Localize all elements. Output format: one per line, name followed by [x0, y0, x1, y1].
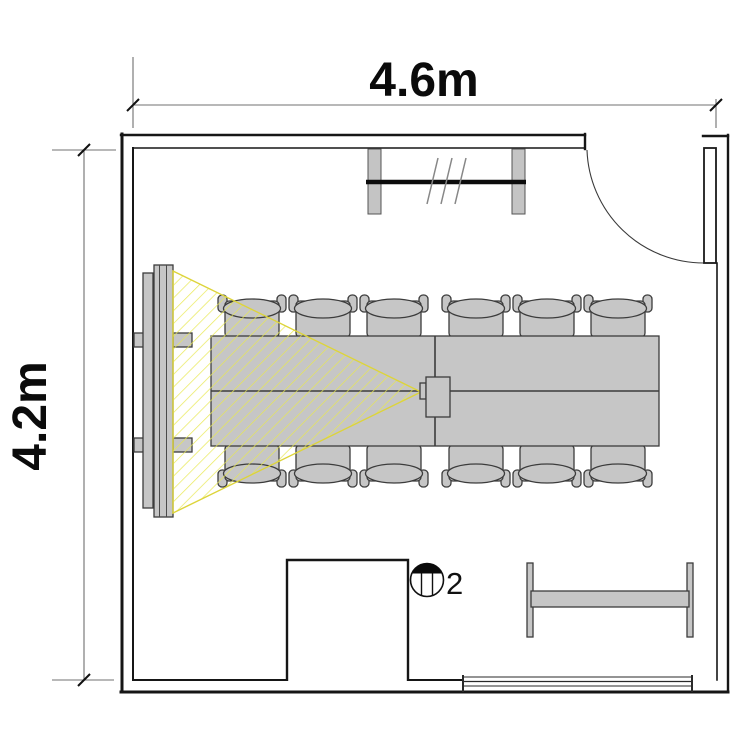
ceiling-device-symbol: 2	[411, 563, 464, 601]
chair	[289, 295, 357, 337]
chair	[513, 445, 581, 487]
top-dimension: 4.6m	[127, 54, 722, 128]
floor-plan: 4.6m 4.2m	[0, 0, 750, 750]
screen-back-panel	[143, 273, 153, 508]
sideboard-top	[531, 591, 689, 607]
whiteboard	[366, 149, 526, 214]
height-dimension-label: 4.2m	[4, 361, 57, 470]
device-cap-icon	[412, 563, 442, 573]
chair	[584, 445, 652, 487]
screen-front-panel	[154, 265, 173, 517]
width-dimension-label: 4.6m	[369, 54, 478, 107]
alcove-notch	[287, 560, 408, 681]
chair	[442, 295, 510, 337]
chair	[360, 445, 428, 487]
window	[463, 675, 692, 692]
projector-lens	[420, 383, 426, 399]
chair	[442, 445, 510, 487]
floor-plan-canvas: 4.6m 4.2m	[0, 0, 750, 750]
left-dimension: 4.2m	[4, 144, 116, 686]
chair	[360, 295, 428, 337]
door	[587, 148, 716, 263]
device-count-label: 2	[446, 566, 463, 601]
sideboard-table	[527, 563, 693, 637]
door-swing-arc	[587, 150, 704, 263]
chair	[513, 295, 581, 337]
chair	[584, 295, 652, 337]
door-leaf	[704, 148, 716, 263]
projector-body	[426, 377, 450, 417]
